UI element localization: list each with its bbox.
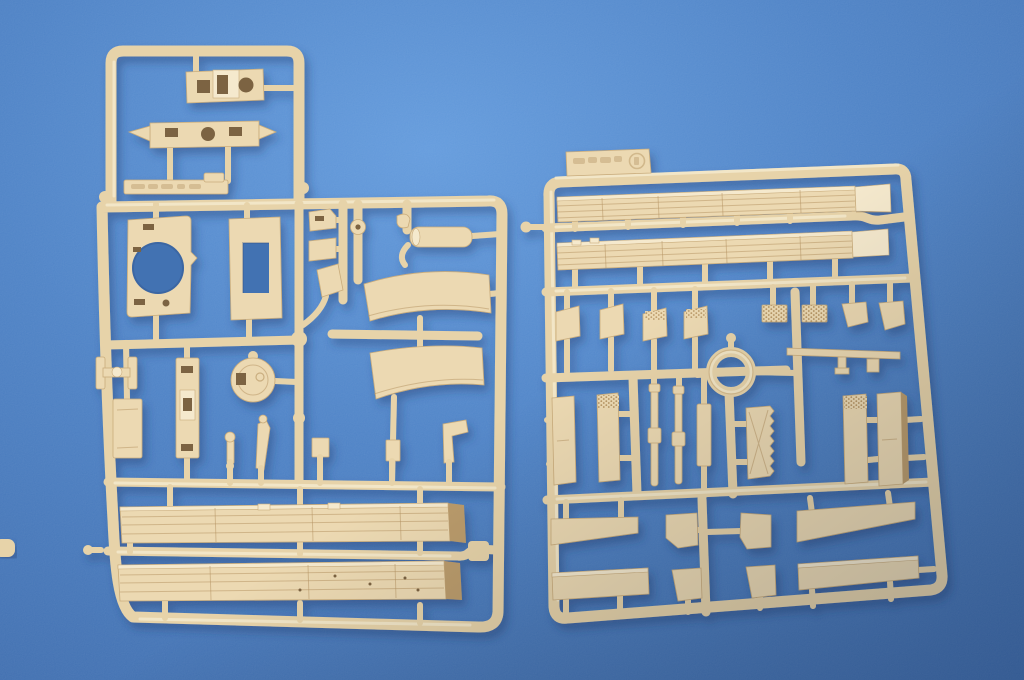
part-bed-plank-lower — [118, 561, 462, 601]
part-slotted-pillar — [176, 358, 199, 458]
right-sprue-tab — [566, 149, 651, 176]
part-eyelet — [351, 220, 366, 235]
part-tread-pillar-left — [597, 393, 620, 482]
edge-sprue-nub — [0, 539, 15, 557]
part-hook — [397, 214, 410, 228]
part-narrow-pillar — [697, 404, 711, 466]
part-cab-plate — [186, 69, 264, 103]
part-bed-plank-upper — [120, 503, 466, 543]
sprue-photo — [0, 0, 1024, 680]
part-frame-plate — [229, 217, 282, 320]
part-serrated-plate — [746, 406, 774, 479]
part-flat-pillar — [552, 396, 576, 485]
part-turret-ring-plate — [127, 216, 197, 317]
part-front-panel-bar — [129, 121, 276, 148]
part-hub-disc — [231, 358, 275, 402]
part-small-panel — [113, 399, 142, 458]
part-tread-pillar-right — [843, 394, 868, 484]
part-box-pillar — [877, 392, 909, 486]
part-corner-plate-b — [740, 513, 771, 549]
part-sill-bar-left — [552, 568, 649, 600]
